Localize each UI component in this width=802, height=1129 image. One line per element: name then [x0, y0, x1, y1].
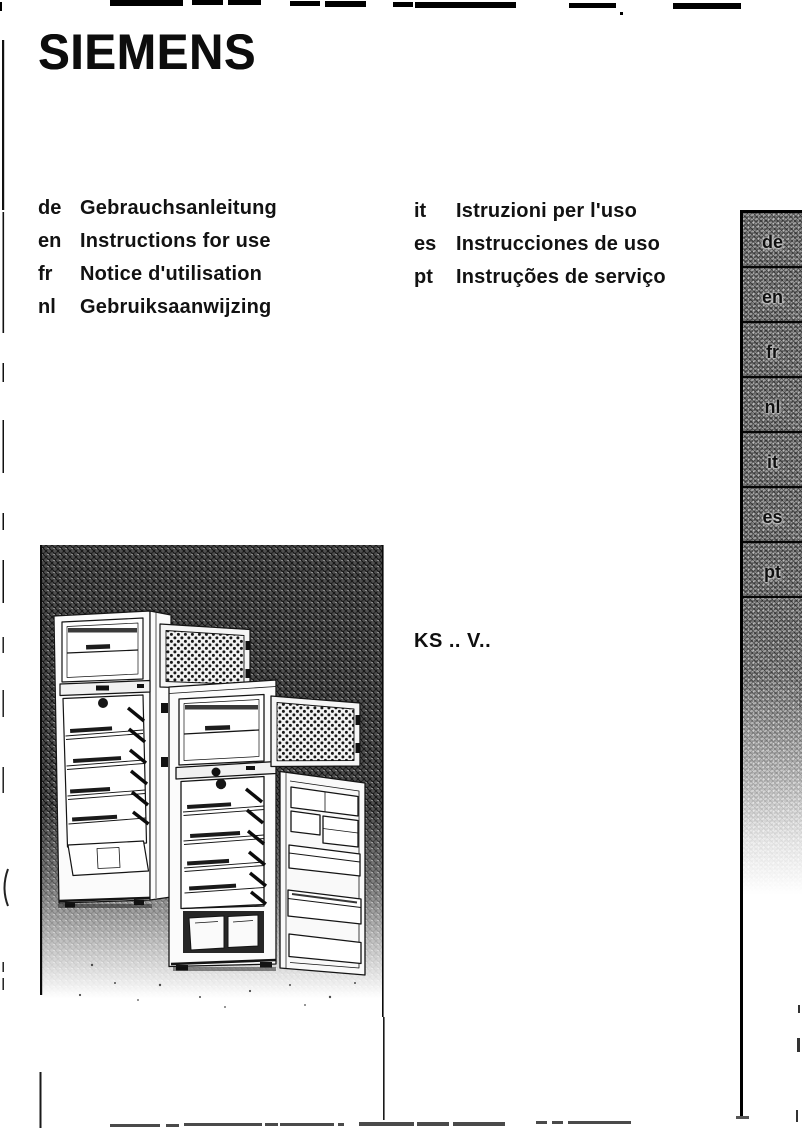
language-code: nl	[38, 296, 80, 319]
language-row-pt: pt Instruções de serviço	[414, 261, 666, 294]
language-row-de: de Gebrauchsanleitung	[38, 192, 277, 225]
product-illustration	[40, 545, 384, 1017]
language-code: en	[38, 230, 80, 253]
language-title: Instruções de serviço	[456, 266, 666, 289]
brand-logo: SIEMENS	[38, 27, 256, 77]
language-code: pt	[414, 266, 456, 289]
language-code: it	[414, 200, 456, 223]
tab-de: de	[743, 213, 802, 268]
language-title: Gebruiksaanwijzing	[80, 296, 271, 319]
language-row-nl: nl Gebruiksaanwijzing	[38, 291, 277, 324]
language-list-left: de Gebrauchsanleitung en Instructions fo…	[38, 192, 277, 324]
language-tab-strip: de en fr nl it es pt	[743, 210, 802, 910]
language-title: Istruzioni per l'uso	[456, 200, 637, 223]
tab-fr: fr	[743, 323, 802, 378]
tab-label: fr	[766, 342, 779, 363]
tab-nl: nl	[743, 378, 802, 433]
language-row-it: it Istruzioni per l'uso	[414, 195, 666, 228]
language-code: de	[38, 197, 80, 220]
model-number: KS .. V..	[414, 630, 491, 653]
tab-strip-tail	[743, 598, 802, 910]
language-row-en: en Instructions for use	[38, 225, 277, 258]
tab-it: it	[743, 433, 802, 488]
language-title: Gebrauchsanleitung	[80, 197, 277, 220]
manual-cover-page: SIEMENS de Gebrauchsanleitung en Instruc…	[0, 0, 802, 1129]
tab-label: de	[762, 232, 783, 253]
refrigerators-drawing	[40, 545, 384, 1017]
language-row-es: es Instrucciones de uso	[414, 228, 666, 261]
language-title: Notice d'utilisation	[80, 263, 262, 286]
tab-label: pt	[764, 562, 781, 583]
language-title: Instructions for use	[80, 230, 271, 253]
language-row-fr: fr Notice d'utilisation	[38, 258, 277, 291]
language-title: Instrucciones de uso	[456, 233, 660, 256]
tab-label: it	[767, 452, 778, 473]
language-code: fr	[38, 263, 80, 286]
language-list-right: it Istruzioni per l'uso es Instrucciones…	[414, 195, 666, 294]
tab-en: en	[743, 268, 802, 323]
tab-es: es	[743, 488, 802, 543]
tab-label: en	[762, 287, 783, 308]
language-code: es	[414, 233, 456, 256]
tab-pt: pt	[743, 543, 802, 598]
tab-label: nl	[765, 397, 781, 418]
tab-label: es	[762, 507, 782, 528]
